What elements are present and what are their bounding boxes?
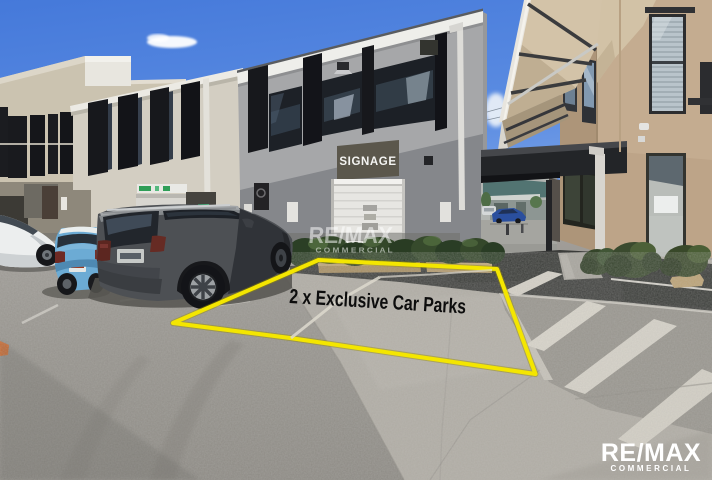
svg-text:SIGNAGE: SIGNAGE bbox=[339, 156, 396, 168]
svg-text:RE/MAX: RE/MAX bbox=[308, 222, 394, 248]
svg-text:C O M M E R C I A L: C O M M E R C I A L bbox=[316, 248, 394, 255]
svg-text:COMMERCIAL: COMMERCIAL bbox=[610, 464, 691, 473]
svg-text:RE/MAX: RE/MAX bbox=[601, 439, 701, 467]
